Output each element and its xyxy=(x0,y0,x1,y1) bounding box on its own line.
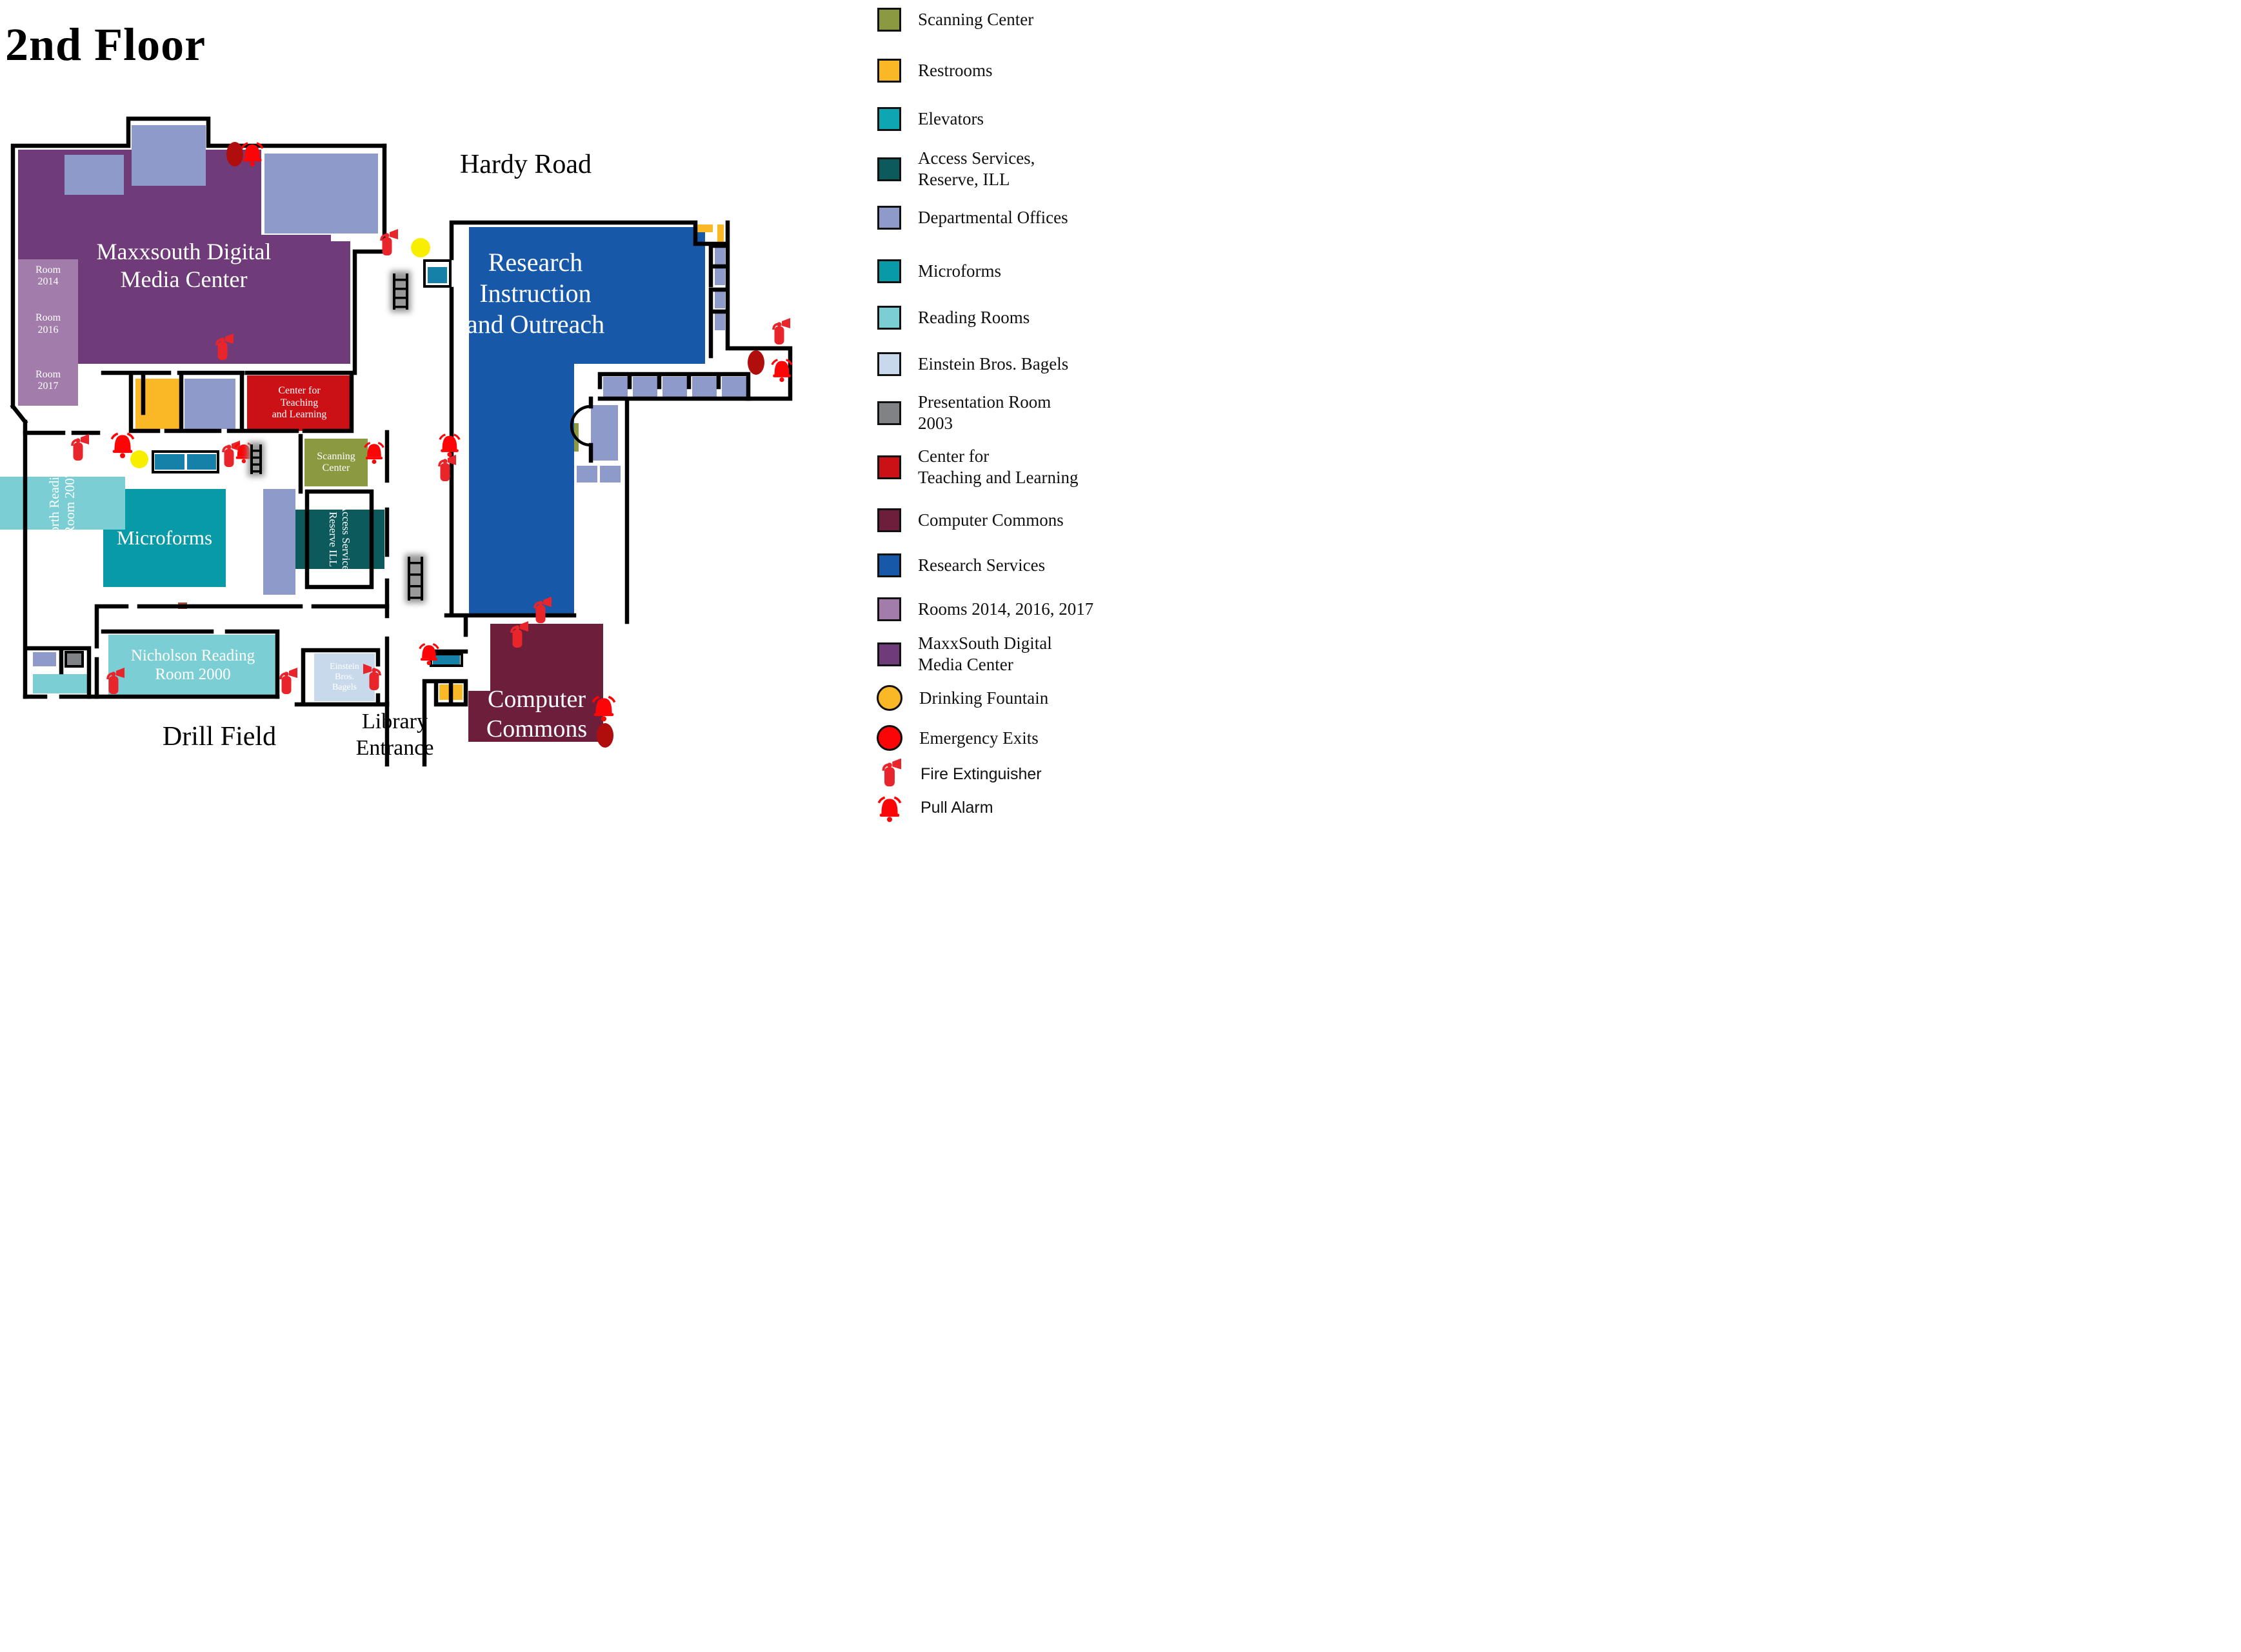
legend-label-line: Presentation Room xyxy=(918,392,1051,413)
room-office-door-tall[interactable] xyxy=(591,405,618,461)
room-elevator-south-car[interactable] xyxy=(433,655,460,664)
legend-swatch xyxy=(877,553,901,577)
legend-label: Fire Extinguisher xyxy=(921,764,1042,784)
room-office-col-4[interactable] xyxy=(715,313,725,330)
room-office-tall[interactable] xyxy=(264,154,378,234)
legend-swatch xyxy=(877,157,901,181)
legend-label-line: MaxxSouth Digital xyxy=(918,633,1052,654)
legend-swatch xyxy=(877,59,901,83)
drinking-fountain-icon xyxy=(130,450,148,468)
legend-label: Scanning Center xyxy=(918,9,1033,30)
room-office-row-3[interactable] xyxy=(662,377,687,399)
drinking-fountain-icon xyxy=(877,685,902,711)
legend-label: Emergency Exits xyxy=(919,728,1039,749)
legend-item-elevators: Elevators xyxy=(870,97,1120,141)
legend-label-line: Scanning Center xyxy=(918,9,1033,30)
room-olive-bar[interactable] xyxy=(574,423,579,452)
legend-item-maxxsouth-digital: MaxxSouth DigitalMedia Center xyxy=(870,632,1120,676)
pull-alarm-icon xyxy=(235,443,252,463)
legend-item-rooms-2014-2016-2017: Rooms 2014, 2016, 2017 xyxy=(870,587,1120,631)
emergency-exit-icon xyxy=(877,725,902,751)
legend-label: Departmental Offices xyxy=(918,207,1068,228)
legend-label: Access Services,Reserve, ILL xyxy=(918,148,1035,190)
room-center-teaching-learning[interactable]: Center forTeachingand Learning xyxy=(247,375,352,431)
legend-label: Pull Alarm xyxy=(921,798,993,818)
room-office-col-2[interactable] xyxy=(715,268,725,285)
room-office-sq-2[interactable] xyxy=(600,466,621,483)
fire-extinguisher-icon xyxy=(875,759,904,790)
fire-extinguisher-icon xyxy=(381,229,398,255)
room-north-reading-room[interactable]: North ReadingRoom 2007 xyxy=(0,477,125,530)
legend-swatch xyxy=(877,206,901,230)
room-label: Bros. xyxy=(335,672,354,682)
room-label: Room xyxy=(35,369,61,381)
room-label: Scanning xyxy=(317,451,355,463)
legend-label-line: Fire Extinguisher xyxy=(921,764,1042,784)
area-label-line: Drill Field xyxy=(163,721,276,753)
room-restroom-west[interactable] xyxy=(135,379,179,429)
room-label: Room 2007 xyxy=(62,472,77,535)
legend-swatch xyxy=(877,401,901,425)
room-room-2016[interactable]: Room2016 xyxy=(18,293,78,355)
room-presentation-room-2003[interactable] xyxy=(65,651,84,668)
room-label: North Reading xyxy=(46,463,62,543)
legend-swatch xyxy=(877,352,901,376)
legend-label-line: Restrooms xyxy=(918,60,993,81)
fire-extinguisher-icon xyxy=(773,318,790,344)
legend-label-line: Departmental Offices xyxy=(918,207,1068,228)
stairs-icon xyxy=(405,554,426,603)
area-label-line: Library xyxy=(362,709,428,735)
room-brown-marker[interactable] xyxy=(178,602,187,609)
room-research-b[interactable] xyxy=(469,364,574,615)
room-label: and Learning xyxy=(272,409,327,421)
room-office-sq-1[interactable] xyxy=(577,466,597,483)
legend-label: Presentation Room2003 xyxy=(918,392,1051,434)
room-research-a[interactable] xyxy=(469,227,705,364)
room-restroom-south-1[interactable] xyxy=(439,684,450,700)
legend-label-line: 2003 xyxy=(918,413,1051,434)
room-label: Room 2000 xyxy=(155,666,230,684)
room-office-bottom-left[interactable] xyxy=(33,652,56,666)
room-label: Access Services xyxy=(339,504,352,575)
page-title: 2nd Floor xyxy=(5,18,206,72)
room-label: 2014 xyxy=(38,276,59,288)
room-label: Teaching xyxy=(281,397,318,409)
room-restroom-south-2[interactable] xyxy=(452,684,463,700)
legend-label-line: Access Services, xyxy=(918,148,1035,169)
room-label: Microforms xyxy=(117,526,212,550)
legend-label: Rooms 2014, 2016, 2017 xyxy=(918,599,1093,620)
legend-label-line: Drinking Fountain xyxy=(919,688,1048,709)
room-table-bar-2[interactable] xyxy=(187,454,216,470)
pull-alarm-icon xyxy=(772,360,792,382)
room-label: Einstein xyxy=(330,662,359,672)
legend-label: Microforms xyxy=(918,261,1001,282)
legend-label: Restrooms xyxy=(918,60,993,81)
legend-swatch xyxy=(877,508,901,532)
room-reading-nook[interactable] xyxy=(33,674,90,693)
legend-swatch xyxy=(877,259,901,283)
room-maxxsouth-b[interactable] xyxy=(261,235,331,364)
legend-swatch xyxy=(877,8,901,32)
pull-alarm-icon xyxy=(440,435,459,457)
pull-alarm-icon xyxy=(112,433,134,458)
legend-label-line: Elevators xyxy=(918,108,984,130)
room-restroom-niche-2[interactable] xyxy=(717,224,724,243)
legend-item-research-services: Research Services xyxy=(870,543,1120,587)
room-maxxsouth-c[interactable] xyxy=(331,241,350,364)
legend-label: Elevators xyxy=(918,108,984,130)
area-label-line: Entrance xyxy=(356,735,434,762)
room-label: Reserve ILL xyxy=(326,512,339,566)
room-einstein-bros-bagels[interactable]: EinsteinBros.Bagels xyxy=(314,653,375,701)
room-office-top-left[interactable] xyxy=(65,155,124,195)
legend-item-einstein-bros-bagels: Einstein Bros. Bagels xyxy=(870,342,1120,386)
room-room-2017[interactable]: Room2017 xyxy=(18,355,78,406)
room-access-services[interactable]: Access ServicesReserve ILL xyxy=(294,510,384,569)
room-label: Nicholson Reading xyxy=(131,647,255,666)
room-office-row-west[interactable] xyxy=(184,379,235,429)
room-office-vert[interactable] xyxy=(263,489,295,595)
pull-alarm-icon xyxy=(875,792,904,823)
room-computer-commons-a[interactable] xyxy=(490,624,603,742)
room-office-row-2[interactable] xyxy=(633,377,657,399)
room-office-col-3[interactable] xyxy=(715,292,725,308)
legend-label-line: Rooms 2014, 2016, 2017 xyxy=(918,599,1093,620)
legend-item-center-for: Center forTeaching and Learning xyxy=(870,445,1120,489)
legend-label-line: Media Center xyxy=(918,654,1052,675)
legend-item-microforms: Microforms xyxy=(870,249,1120,293)
room-room-2014[interactable]: Room2014 xyxy=(18,259,78,293)
drill-field: Drill Field xyxy=(13,720,426,754)
room-label: Center xyxy=(323,463,350,474)
legend-label-line: Pull Alarm xyxy=(921,798,993,818)
legend-swatch xyxy=(877,642,901,666)
legend-label-line: Emergency Exits xyxy=(919,728,1039,749)
room-office-bump[interactable] xyxy=(132,125,206,186)
floor-plan-page: 2nd Floor Room2014Room2016Room2017Center… xyxy=(0,0,1120,826)
room-label: 2016 xyxy=(38,324,59,336)
legend-label-line: Einstein Bros. Bagels xyxy=(918,353,1068,375)
room-label: 2017 xyxy=(38,381,59,392)
legend-item-reading-rooms: Reading Rooms xyxy=(870,295,1120,339)
room-scanning-center[interactable]: ScanningCenter xyxy=(304,439,368,486)
exit-icon xyxy=(748,350,764,375)
legend-label-line: Reserve, ILL xyxy=(918,169,1035,190)
room-office-row-5[interactable] xyxy=(722,377,746,399)
fire-extinguisher-icon xyxy=(439,455,456,481)
legend-item-drinking-fountain: Drinking Fountain xyxy=(870,676,1120,720)
stairs-icon xyxy=(390,271,411,312)
legend-label-line: Teaching and Learning xyxy=(918,467,1079,488)
hardy-road: Hardy Road xyxy=(319,148,732,182)
wall-entrance xyxy=(387,652,466,764)
legend-item-access-services: Access Services,Reserve, ILL xyxy=(870,147,1120,191)
room-office-row-1[interactable] xyxy=(603,377,628,399)
room-office-col-1[interactable] xyxy=(715,248,725,264)
legend-label: Computer Commons xyxy=(918,510,1064,531)
room-label: Center for xyxy=(278,385,320,397)
legend-swatch xyxy=(877,597,901,621)
legend-item-pull-alarm: Pull Alarm xyxy=(870,786,1120,826)
fire-extinguisher-icon xyxy=(223,441,240,467)
legend-label: MaxxSouth DigitalMedia Center xyxy=(918,633,1052,675)
legend-swatch xyxy=(877,107,901,131)
room-elevator-north-car[interactable] xyxy=(428,267,447,283)
legend-label-line: Reading Rooms xyxy=(918,307,1030,328)
fire-extinguisher-icon xyxy=(72,434,89,461)
legend-swatch xyxy=(877,455,901,479)
fire-extinguisher-icon xyxy=(281,668,297,694)
stairs-icon xyxy=(248,442,264,477)
legend-item-restrooms: Restrooms xyxy=(870,48,1120,92)
room-computer-commons-b[interactable] xyxy=(468,691,490,742)
legend-item-scanning-center: Scanning Center xyxy=(870,0,1120,41)
room-office-row-4[interactable] xyxy=(692,377,717,399)
legend-label-line: Center for xyxy=(918,446,1079,467)
drinking-fountain-icon xyxy=(411,238,430,257)
room-restroom-niche-1[interactable] xyxy=(697,224,713,232)
legend-item-departmental-offices: Departmental Offices xyxy=(870,195,1120,239)
legend-label-line: Computer Commons xyxy=(918,510,1064,531)
room-label: Bagels xyxy=(332,682,357,693)
legend-label-line: Research Services xyxy=(918,555,1045,576)
room-nicholson-reading-room[interactable]: Nicholson ReadingRoom 2000 xyxy=(108,635,277,697)
legend-label: Center forTeaching and Learning xyxy=(918,446,1079,488)
legend-label: Einstein Bros. Bagels xyxy=(918,353,1068,375)
legend-label: Drinking Fountain xyxy=(919,688,1048,709)
legend-swatch xyxy=(877,306,901,330)
room-label: Room xyxy=(35,312,61,324)
legend-item-computer-commons: Computer Commons xyxy=(870,498,1120,542)
legend-label: Research Services xyxy=(918,555,1045,576)
room-table-bar-1[interactable] xyxy=(155,454,184,470)
legend: Scanning CenterRestroomsElevatorsAccess … xyxy=(870,0,1120,826)
legend-item-presentation-room: Presentation Room2003 xyxy=(870,391,1120,435)
room-label: Room xyxy=(35,264,61,276)
area-label-line: Hardy Road xyxy=(460,148,592,181)
legend-label: Reading Rooms xyxy=(918,307,1030,328)
legend-label-line: Microforms xyxy=(918,261,1001,282)
